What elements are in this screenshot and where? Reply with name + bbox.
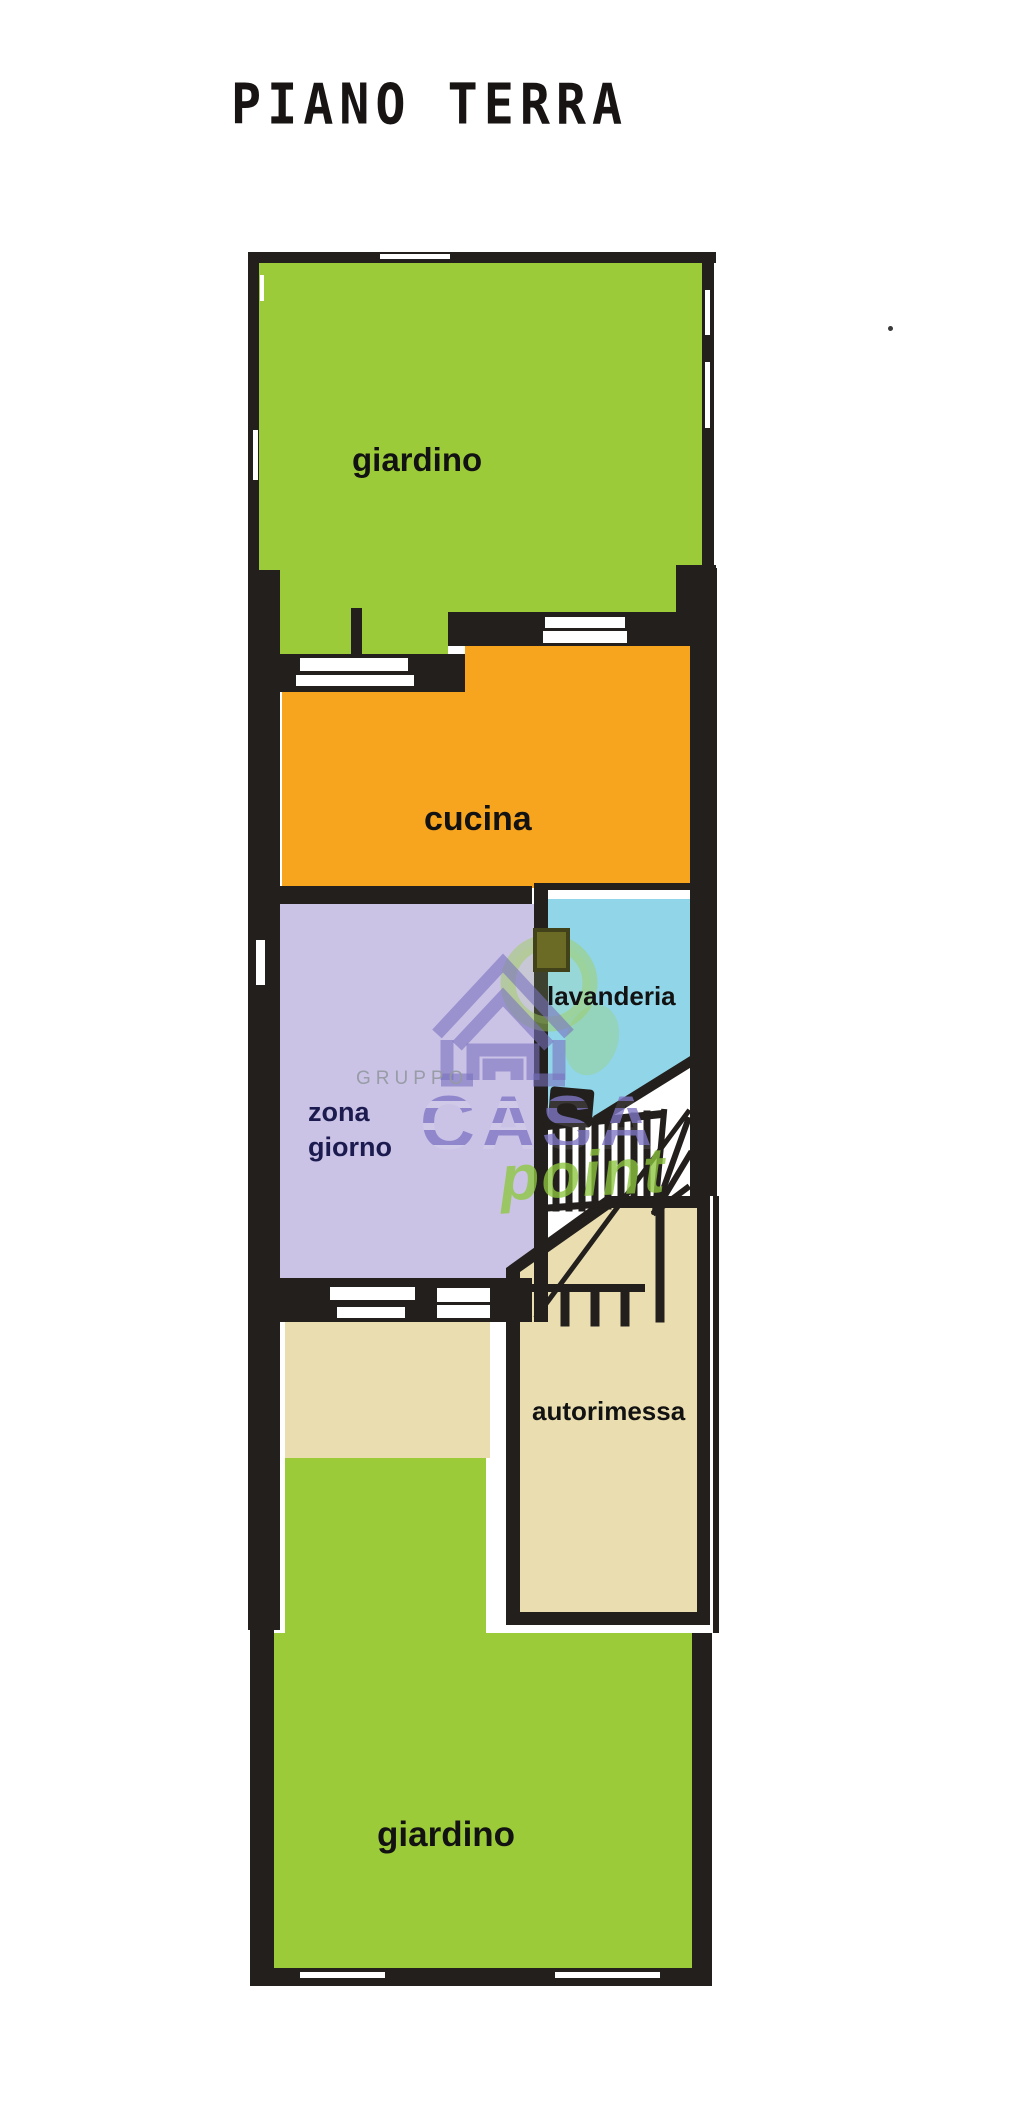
- kitchen-region-right: [465, 646, 690, 888]
- ink-speck: [888, 326, 893, 331]
- garden-bottom-tongue: [285, 1458, 486, 1636]
- chimney-square: [535, 930, 568, 970]
- garage-label: autorimessa: [532, 1398, 685, 1424]
- living-room-label-line1: zona: [308, 1099, 370, 1126]
- garden-top-region-lower: [258, 568, 676, 612]
- garden-top-region: [258, 263, 702, 568]
- floorplan-page: PIANO TERRA: [0, 0, 1024, 2125]
- garden-top-tongue: [280, 612, 448, 656]
- garden-top-label: giardino: [352, 443, 482, 476]
- laundry-label: lavanderia: [547, 983, 676, 1009]
- watermark-point-text: point: [498, 1138, 667, 1211]
- living-room-label-line2: giorno: [308, 1134, 392, 1161]
- garden-bottom-label: giardino: [377, 1817, 515, 1852]
- kitchen-region-left: [282, 692, 465, 888]
- patio-region: [285, 1322, 490, 1458]
- floorplan-drawing: [0, 0, 1024, 2125]
- kitchen-label: cucina: [424, 802, 532, 836]
- garden-bottom-region: [274, 1633, 692, 1972]
